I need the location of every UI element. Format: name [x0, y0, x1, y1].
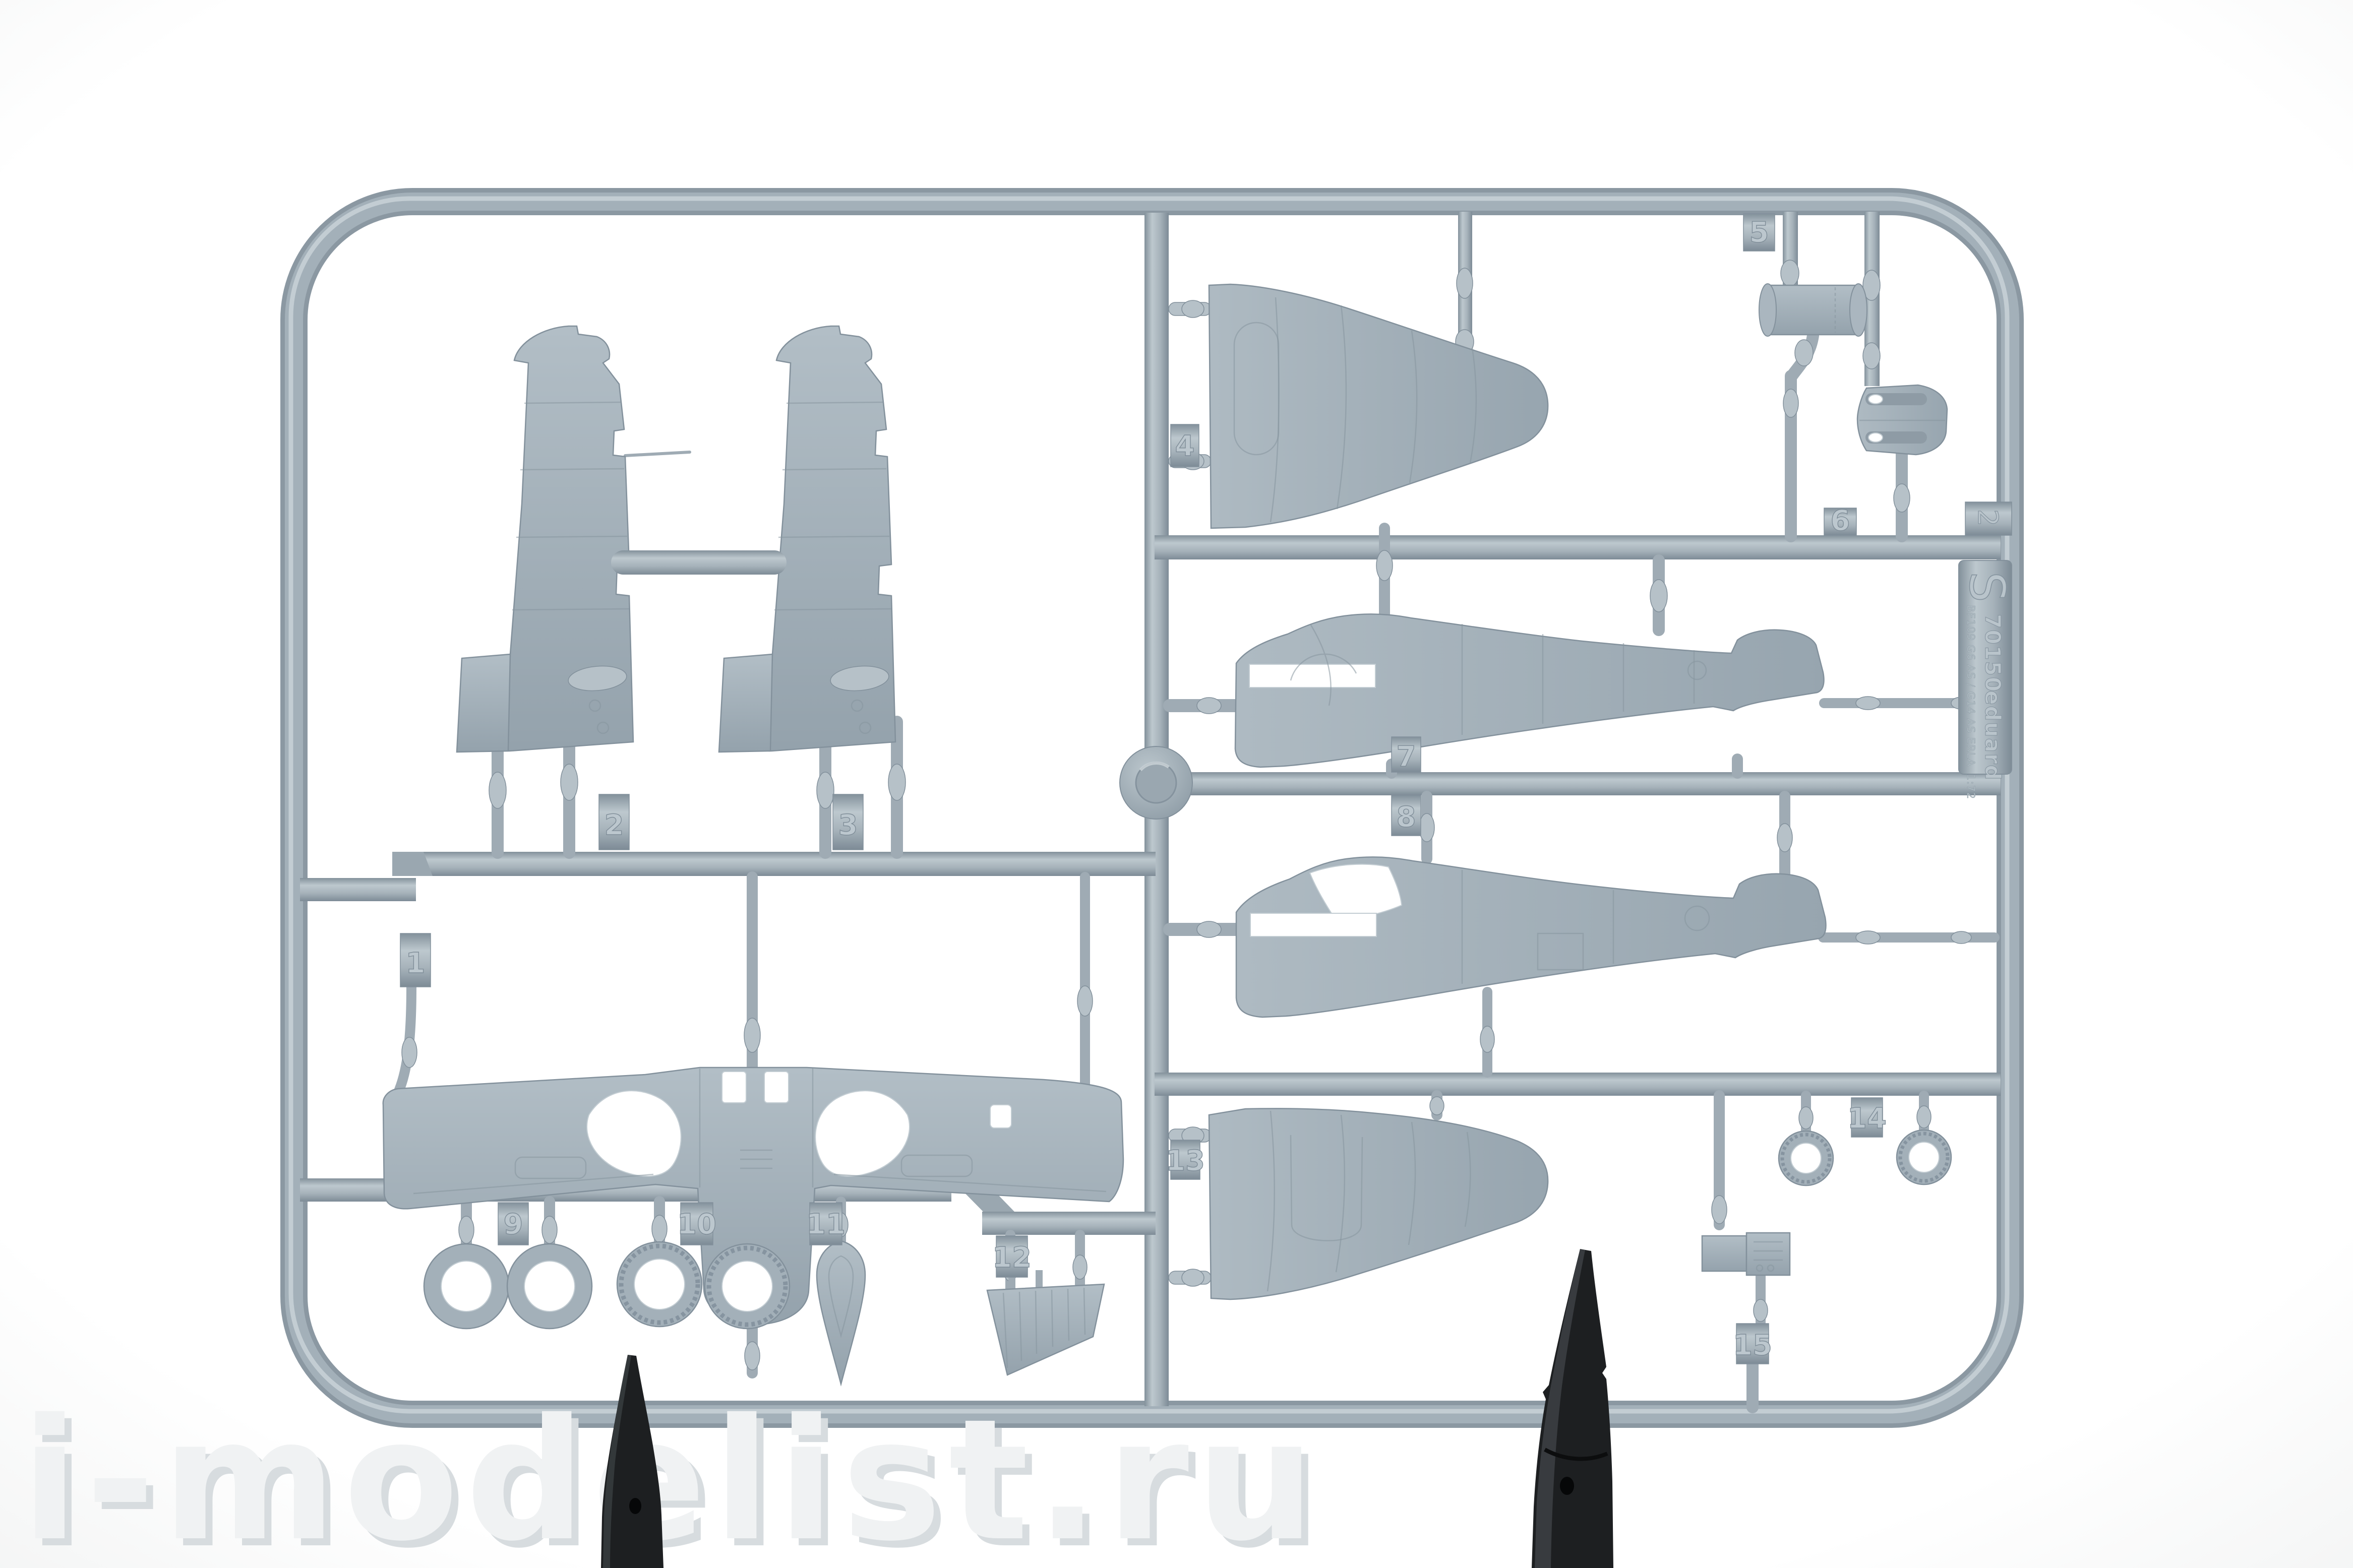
brand-name: eduard	[1980, 691, 2005, 781]
kit-subject: BF109 G6 AS / G14 AS ERLA	[1965, 605, 1977, 767]
kit-number: 70150	[1980, 614, 2005, 693]
runner-right-top	[1155, 535, 2001, 559]
part-instrument-box	[1702, 1233, 1790, 1275]
photo-stage: 1 2 3 4 5 6 7 8 9 10 11 12 13 14 15 2 S	[0, 0, 2353, 1568]
exhaust-slot-2	[1250, 913, 1376, 936]
clip-hole-left	[629, 1498, 641, 1514]
spar-cutout-left	[722, 1072, 746, 1103]
watermark: i-modelist.ru i-modelist.ru	[21, 1384, 1330, 1568]
runner-right-middle	[1155, 772, 2001, 795]
runner-right-lower	[1155, 1073, 2001, 1096]
runner-hub	[1120, 746, 1192, 819]
runner-wing-tab-rail	[397, 852, 1156, 876]
watermark-text: i-modelist.ru	[21, 1384, 1322, 1568]
part-intake-drum	[1759, 284, 1867, 336]
part-tab-6-label: 6	[1831, 505, 1850, 537]
part-tab-3-label: 3	[838, 809, 858, 842]
exhaust-slot	[1249, 664, 1375, 687]
part-nose-cowl	[1857, 385, 1947, 455]
part-tab-7-label: 7	[1397, 740, 1416, 773]
slot-cutout	[990, 1105, 1011, 1128]
part-tab-13-label: 13	[1166, 1145, 1205, 1177]
part-tab-4-label: 4	[1175, 430, 1195, 463]
runner-wing-tab-rail-left	[300, 878, 416, 901]
part-tab-2-label: 2	[605, 809, 624, 842]
part-tab-12-label: 12	[992, 1241, 1032, 1274]
spar-cutout-right	[764, 1072, 789, 1103]
part-tab-14-label: 14	[1847, 1102, 1887, 1135]
part-tab-10-label: 10	[677, 1208, 716, 1241]
edge-tab-2-label: 2	[1972, 509, 2004, 526]
wing-crossbar	[611, 550, 787, 575]
part-tab-5-label: 5	[1749, 216, 1769, 249]
clip-hole-right	[1560, 1477, 1574, 1495]
part-tab-8-label: 8	[1397, 801, 1416, 834]
part-tab-1-label: 1	[406, 947, 426, 980]
sprue-letter: S	[1959, 572, 2015, 602]
part-tab-9-label: 9	[504, 1208, 523, 1241]
part-tab-15-label: 15	[1733, 1329, 1772, 1362]
kit-scale: 1:72	[1965, 774, 1977, 799]
part-tab-11-label: 11	[806, 1208, 846, 1241]
sprue-photo: 1 2 3 4 5 6 7 8 9 10 11 12 13 14 15 2 S	[0, 0, 2353, 1568]
